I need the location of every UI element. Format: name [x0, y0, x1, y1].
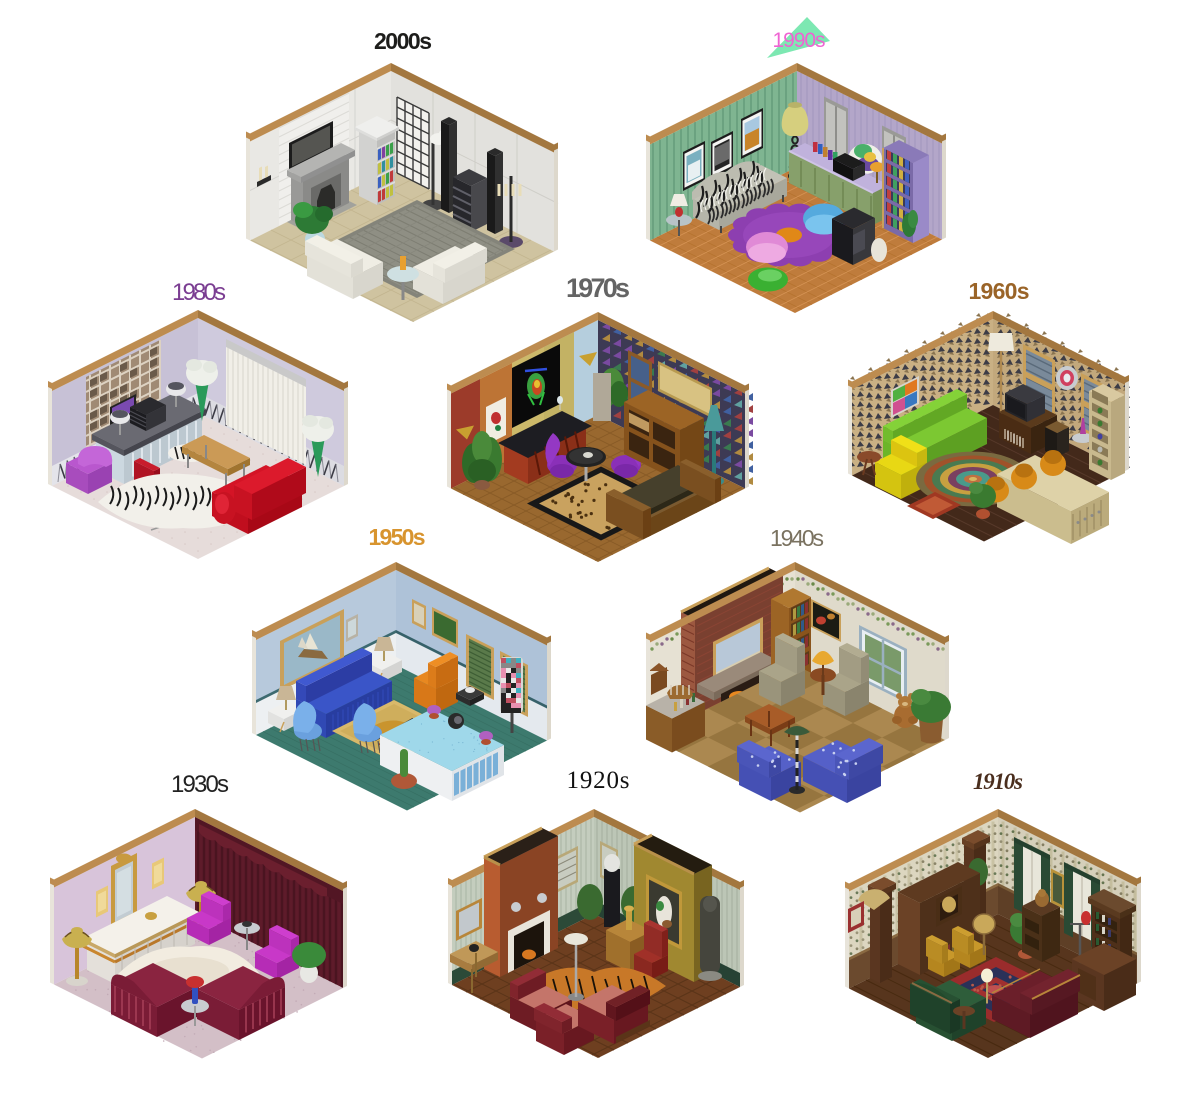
svg-text:1920s: 1920s: [567, 767, 630, 794]
svg-text:1990s: 1990s: [773, 29, 826, 52]
svg-text:1930s: 1930s: [171, 771, 229, 798]
svg-text:2000s: 2000s: [374, 28, 432, 54]
svg-text:1950s: 1950s: [369, 524, 426, 550]
svg-text:1960s: 1960s: [969, 278, 1030, 304]
svg-text:1970s: 1970s: [566, 273, 630, 303]
svg-text:1940s: 1940s: [770, 525, 824, 551]
svg-text:1980s: 1980s: [172, 279, 226, 306]
svg-text:1910s: 1910s: [973, 769, 1023, 794]
